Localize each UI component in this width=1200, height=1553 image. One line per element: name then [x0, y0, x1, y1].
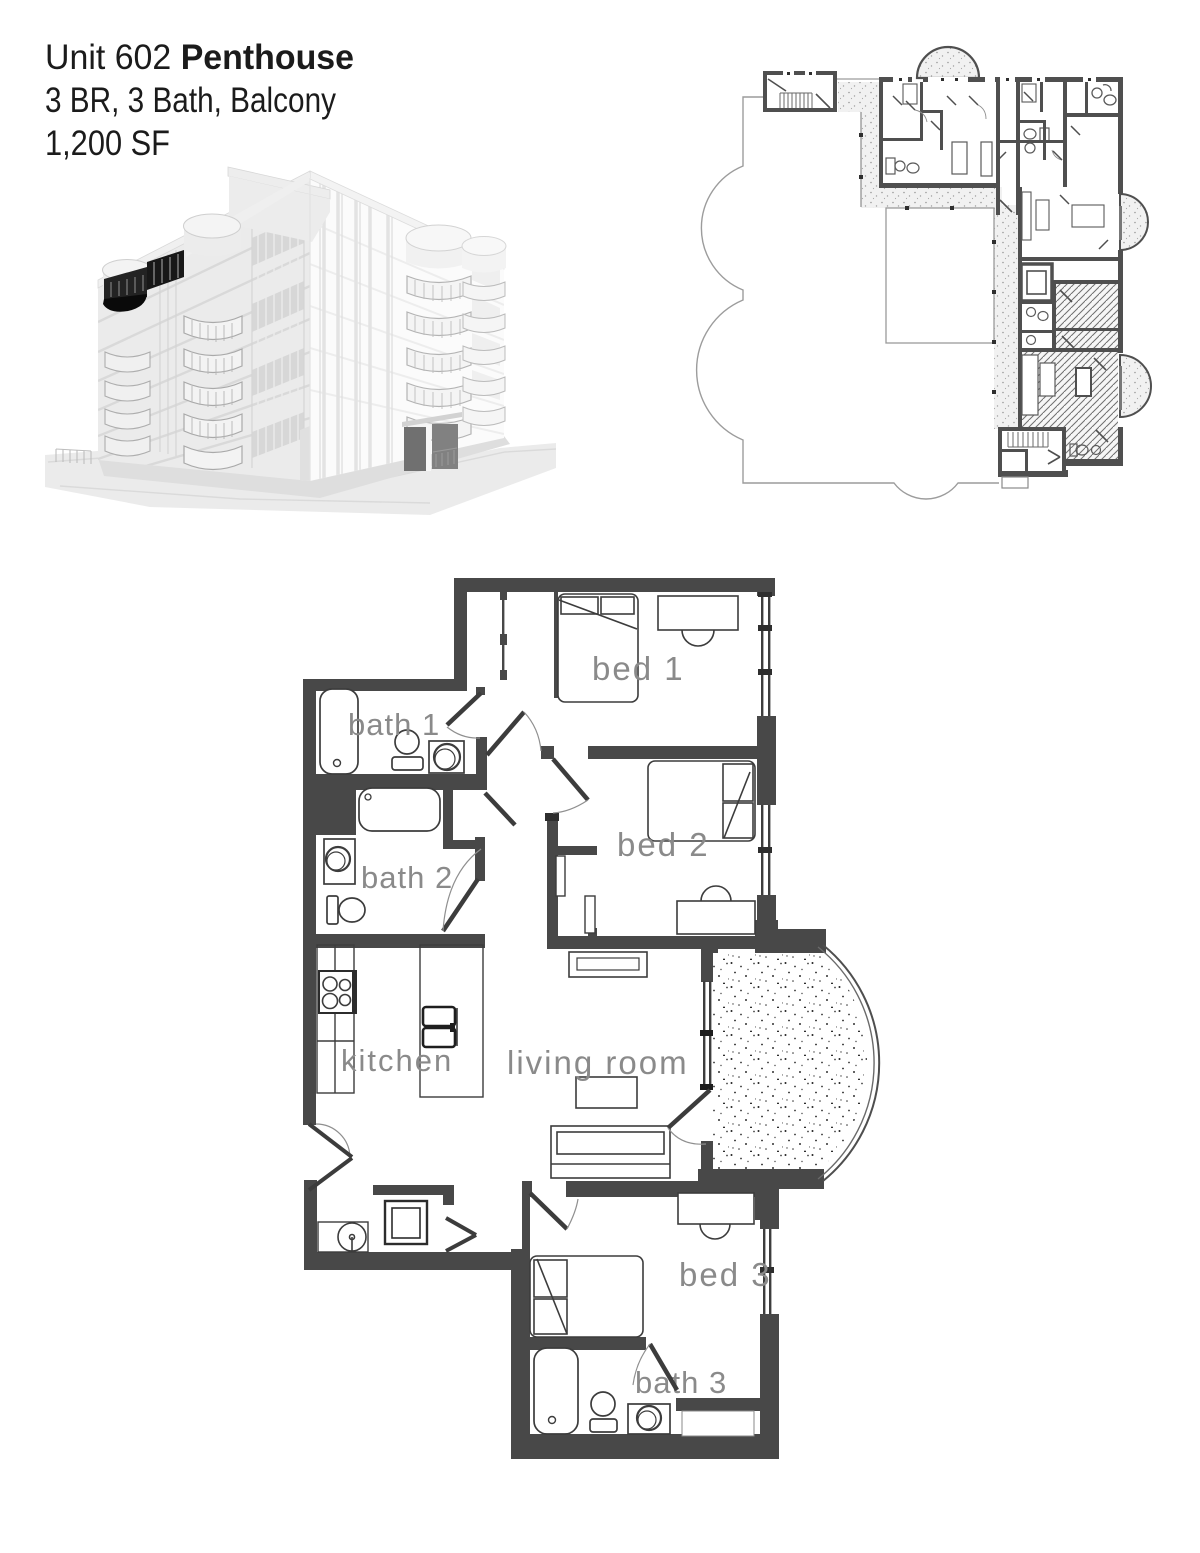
- svg-text:kitchen: kitchen: [341, 1043, 453, 1078]
- svg-text:bed 2: bed 2: [617, 826, 710, 863]
- svg-text:bath 3: bath 3: [635, 1365, 727, 1400]
- svg-text:3 BR, 3 Bath, Balcony: 3 BR, 3 Bath, Balcony: [45, 81, 336, 120]
- svg-text:Unit 602 Penthouse: Unit 602 Penthouse: [45, 38, 354, 77]
- svg-text:bed 3: bed 3: [679, 1256, 772, 1293]
- svg-text:bath 2: bath 2: [361, 860, 453, 895]
- svg-text:living room: living room: [507, 1044, 689, 1081]
- svg-text:bath 1: bath 1: [348, 707, 440, 742]
- svg-text:1,200 SF: 1,200 SF: [45, 124, 170, 163]
- svg-text:bed 1: bed 1: [592, 650, 685, 687]
